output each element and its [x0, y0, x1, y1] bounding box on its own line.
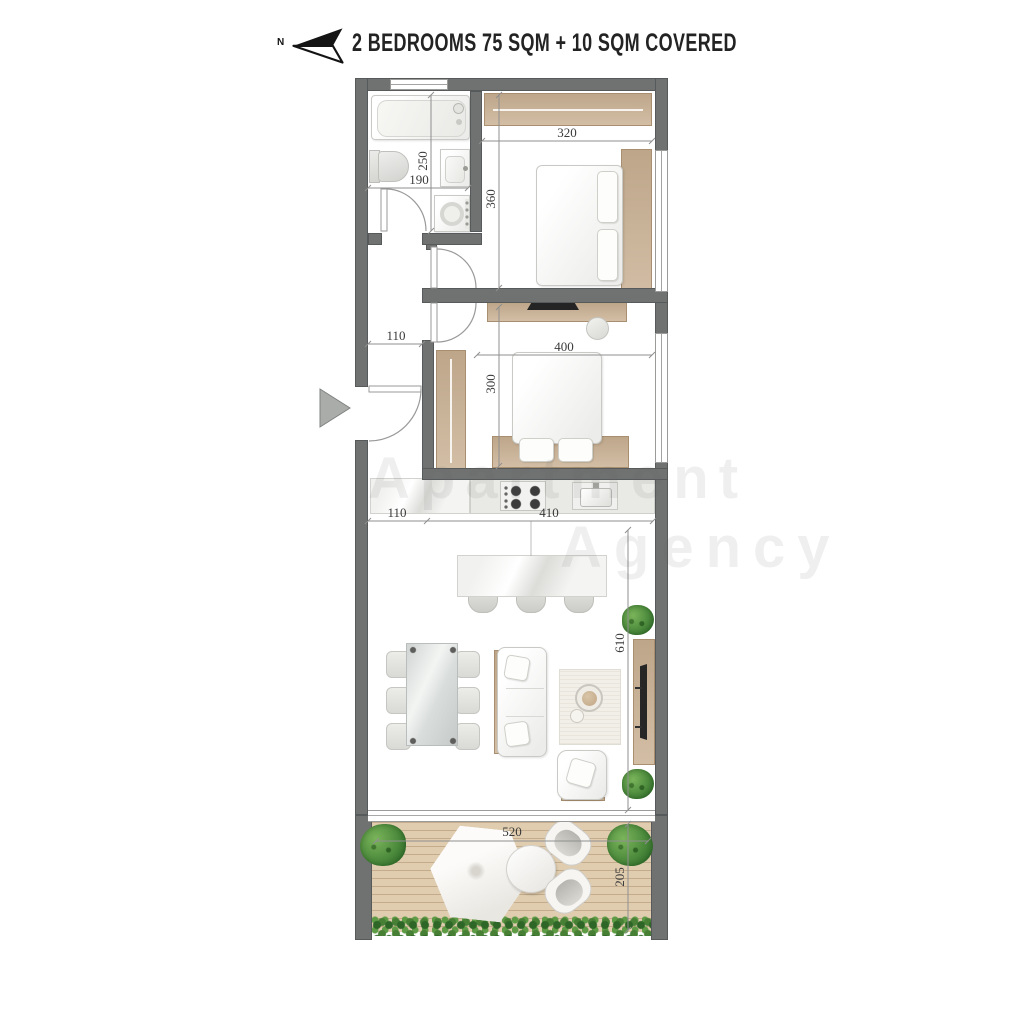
dim-kitchen-offset: 110 — [387, 505, 406, 521]
entry-arrow-icon — [320, 389, 350, 427]
hall-door-arc — [437, 249, 476, 288]
umbrella-pole — [466, 862, 486, 880]
balcony-sliding-door — [368, 810, 655, 822]
bathtub-faucet — [453, 103, 464, 114]
wall-left-upper — [355, 78, 368, 387]
bathroom-door-leaf — [381, 189, 387, 231]
bedroom2-door-arc — [437, 303, 476, 342]
north-arrow-icon — [290, 25, 346, 65]
desk-tv — [527, 303, 579, 310]
dim-bedroom1-height: 360 — [483, 189, 499, 209]
entry-door-arc — [369, 389, 421, 441]
wall-left-lower — [355, 440, 368, 815]
dim-hall-width: 110 — [386, 328, 405, 344]
bathtub — [371, 95, 470, 140]
bed-pillow — [597, 171, 618, 223]
kitchen-tall-cabinet — [370, 478, 470, 514]
bedroom1-window — [655, 150, 668, 292]
kitchen-sink — [572, 482, 618, 510]
sofa-pillow — [503, 720, 530, 747]
side-table — [570, 709, 584, 723]
bedroom1-wardrobe — [484, 93, 652, 126]
dining-chair — [455, 651, 480, 678]
toilet-bowl — [378, 151, 409, 182]
coffee-table-top — [582, 691, 597, 706]
entry-door-leaf — [369, 386, 421, 392]
bathroom-door-arc — [387, 189, 426, 231]
sofa-cushion-line — [506, 716, 544, 717]
wall-balcony-right — [651, 815, 668, 940]
bedroom2-door-leaf — [431, 303, 437, 342]
sink-faucet — [593, 483, 599, 488]
bed-pillow — [558, 438, 593, 462]
bedroom2-wardrobe — [436, 350, 466, 470]
wall-bedroom2-west — [422, 340, 434, 472]
sofa-cushion-line — [506, 688, 544, 689]
dim-balcony-width: 520 — [502, 824, 522, 840]
tv-stand — [635, 687, 642, 689]
balcony-hedge — [372, 916, 653, 936]
sofa-pillow — [503, 654, 531, 682]
potted-plant — [622, 605, 654, 635]
sink-faucet — [463, 166, 468, 171]
wardrobe-door-line — [450, 359, 452, 463]
tv-stand — [635, 726, 642, 728]
kitchen-counter — [470, 478, 655, 514]
bedroom2-bed — [512, 352, 602, 444]
sink-basin — [580, 488, 612, 507]
dim-bedroom1-width: 320 — [557, 125, 577, 141]
wall-hinge-stub — [426, 244, 437, 250]
north-label: N — [277, 37, 284, 48]
potted-plant — [622, 769, 654, 799]
dim-bathroom-height: 250 — [415, 151, 431, 171]
desk-stool — [586, 317, 609, 340]
wall-bedroom2-bottom — [422, 468, 668, 480]
wall-bedroom-divider — [422, 288, 668, 303]
dim-bedroom2-height: 300 — [483, 374, 499, 394]
balcony-bush — [607, 824, 653, 866]
bedroom2-window — [655, 333, 668, 463]
balcony-bush — [360, 824, 406, 866]
dim-bathroom-width: 190 — [409, 172, 429, 188]
wall-bathroom-door-stub — [368, 233, 382, 245]
hall-door-leaf — [431, 247, 437, 288]
tv — [640, 664, 647, 740]
washer-drum — [440, 202, 464, 226]
dim-living-height: 610 — [612, 633, 628, 653]
washer-controls — [465, 199, 469, 229]
wall-bathroom-right — [470, 91, 482, 232]
floor-plan-page: N 2 BEDROOMS 75 SQM + 10 SQM COVERED Apa… — [0, 0, 1024, 1024]
dim-balcony-height: 205 — [612, 867, 628, 887]
sink-basin — [445, 156, 465, 183]
bedroom1-headboard-panel — [621, 149, 652, 301]
dim-bedroom2-width: 400 — [554, 339, 574, 355]
dining-chair — [455, 687, 480, 714]
page-title: 2 BEDROOMS 75 SQM + 10 SQM COVERED — [352, 29, 737, 58]
washing-machine — [434, 195, 470, 232]
bathroom-window — [390, 79, 448, 90]
kitchen-island — [457, 555, 607, 597]
bathtub-drain — [456, 119, 462, 125]
bed-pillow — [597, 229, 618, 281]
bed-pillow — [519, 438, 554, 462]
wardrobe-door-line — [493, 109, 643, 111]
lounge-cushion — [550, 825, 587, 861]
dining-chair — [455, 723, 480, 750]
dim-kitchen-width: 410 — [539, 505, 559, 521]
dining-table — [406, 643, 458, 746]
bathroom-sink — [440, 149, 470, 187]
